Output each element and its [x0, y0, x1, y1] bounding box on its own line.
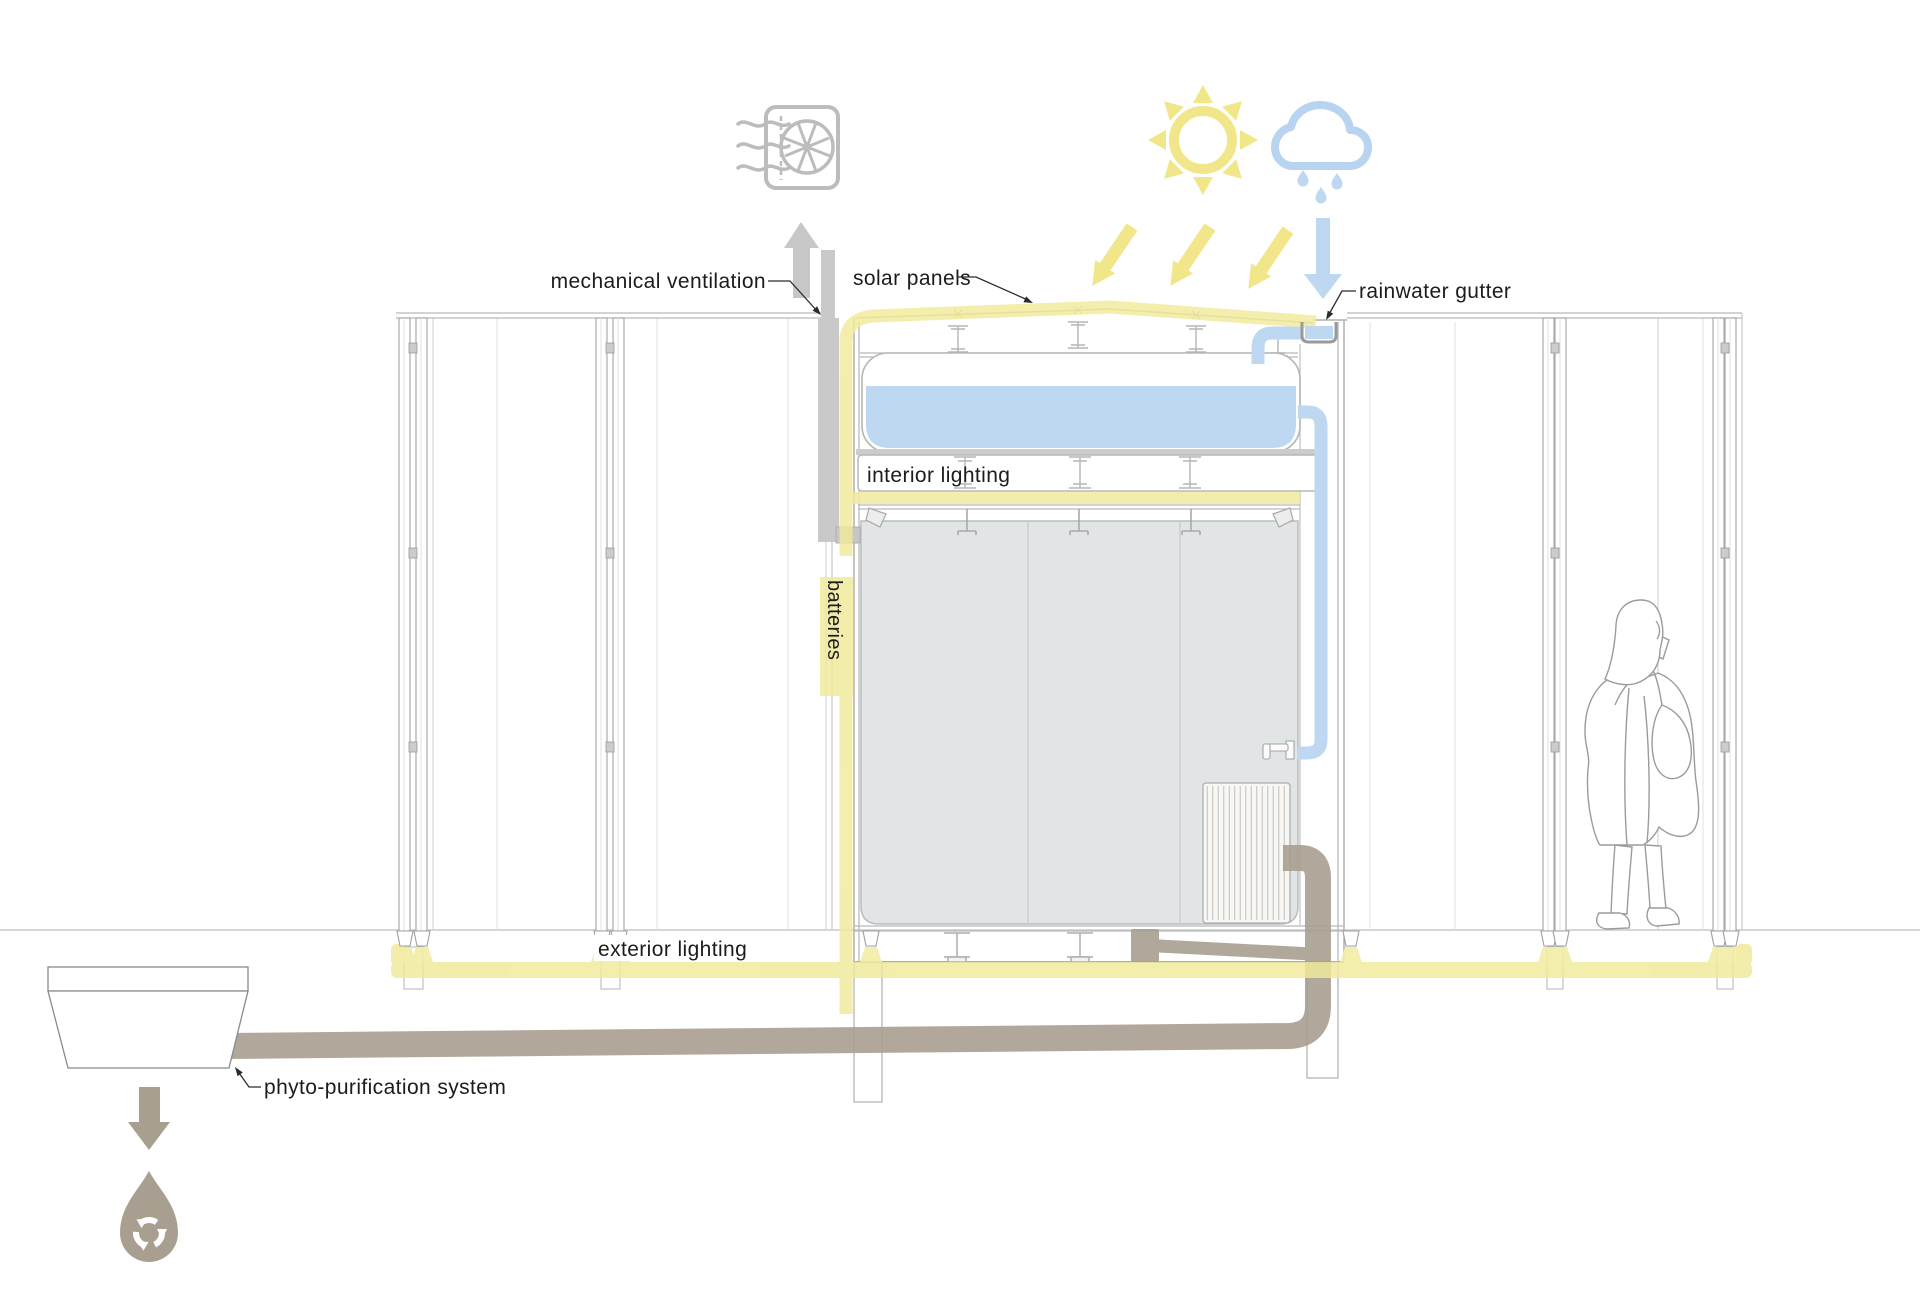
label-mechanical-ventilation: mechanical ventilation	[551, 270, 766, 293]
label-interior-lighting: interior lighting	[867, 464, 1010, 487]
label-rainwater-gutter: rainwater gutter	[1359, 280, 1511, 303]
rain-cloud-icon	[1275, 105, 1368, 204]
right-wing-wall	[1347, 313, 1742, 989]
phyto-purification-basin	[48, 967, 248, 1068]
sun-icon	[1148, 85, 1258, 195]
tank-water	[866, 386, 1296, 448]
person-figure	[1585, 600, 1699, 929]
ventilation-fan-icon	[738, 107, 838, 188]
recycled-water-drop-icon	[120, 1171, 178, 1262]
wall-post-pair	[399, 318, 427, 931]
wall-post-pair	[1713, 318, 1736, 931]
label-solar-panels: solar panels	[853, 267, 971, 290]
label-phyto-purification: phyto-purification system	[264, 1076, 506, 1099]
section-diagram: mechanical ventilation solar panels rain…	[0, 0, 1920, 1300]
down-arrow-icon	[128, 1087, 170, 1150]
rain-arrow-icon	[1304, 218, 1342, 299]
wall-post-pair	[596, 318, 624, 931]
label-batteries: batteries	[823, 580, 845, 660]
up-arrow-icon	[784, 222, 819, 298]
left-wing-wall	[396, 313, 832, 989]
interior-room	[858, 505, 1300, 924]
wall-post-pair	[1543, 318, 1566, 931]
radiator	[1203, 783, 1290, 923]
rainwater-tank	[856, 353, 1318, 455]
exterior-lighting-line	[391, 962, 1752, 978]
interior-lighting-highlight	[843, 492, 1300, 504]
label-exterior-lighting: exterior lighting	[598, 938, 747, 961]
